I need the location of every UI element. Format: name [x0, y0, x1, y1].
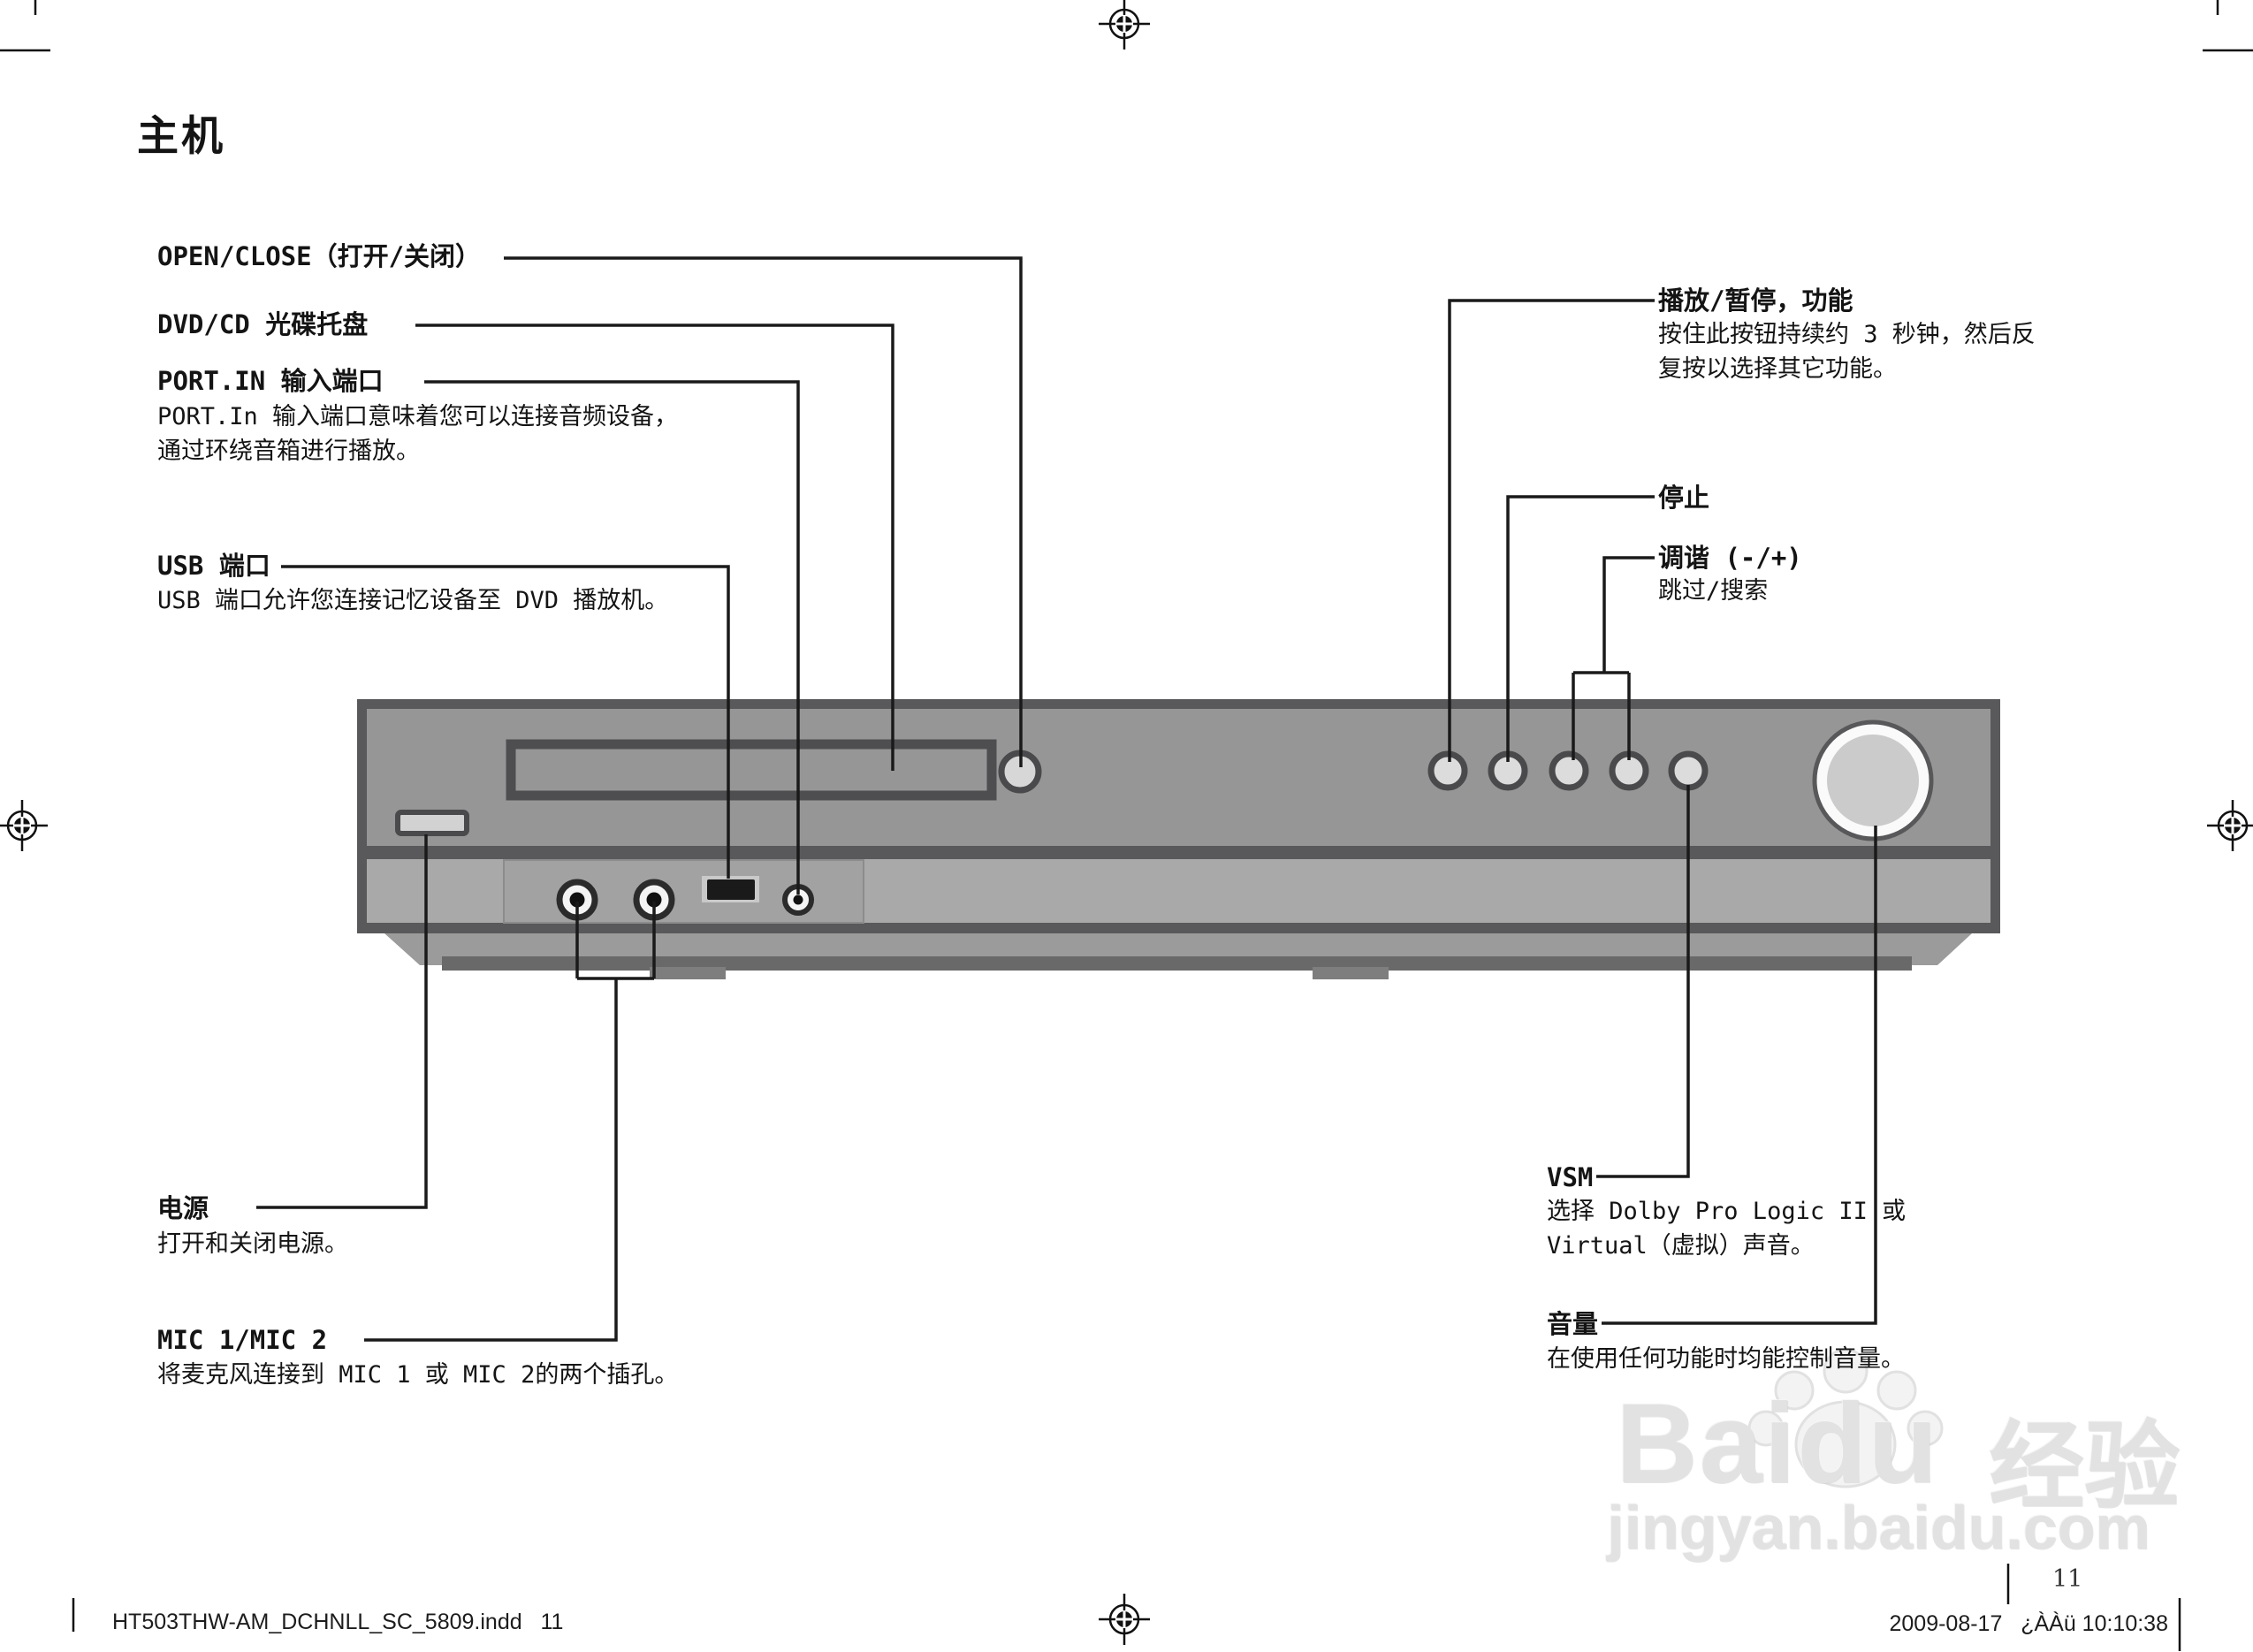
tuning-minus-button: [1552, 754, 1586, 788]
registration-mark-top: [1099, 0, 1150, 49]
callout-play-pause-desc1: 按住此按钮持续约 3 秒钟，然后反: [1658, 320, 2036, 350]
callout-mic-label: MIC 1/MIC 2: [157, 1324, 327, 1356]
watermark-brand: Baidu: [1616, 1379, 1939, 1509]
callout-play-pause-label: 播放/暂停，功能: [1658, 285, 1853, 316]
callout-stop-label: 停止: [1658, 482, 1709, 514]
callout-open-close-label: OPEN/CLOSE（打开/关闭）: [157, 240, 481, 272]
callout-volume-label: 音量: [1547, 1308, 1598, 1340]
callout-usb-desc: USB 端口允许您连接记忆设备至 DVD 播放机。: [157, 586, 668, 616]
watermark-domain: jingyan.baidu.com: [1607, 1492, 2150, 1563]
vsm-button: [1671, 754, 1705, 788]
callout-portin-label: PORT.IN 输入端口: [157, 365, 384, 397]
play-pause-button: [1431, 754, 1465, 788]
registration-mark-right: [2207, 800, 2253, 851]
callout-power-desc: 打开和关闭电源。: [157, 1229, 348, 1260]
callout-vsm-desc2: Virtual（虚拟）声音。: [1547, 1231, 1815, 1261]
footer-filename: HT503THW-AM_DCHNLL_SC_5809.indd 11: [112, 1609, 563, 1636]
page-title: 主机: [137, 111, 225, 164]
page-number: 11: [2052, 1564, 2082, 1595]
callout-portin-desc1: PORT.In 输入端口意味着您可以连接音频设备，: [157, 402, 678, 432]
registration-mark-left: [0, 800, 48, 851]
manual-page: 主机 OPEN/CLOSE（打开/关闭） DVD/CD 光碟托盘 PORT.IN…: [0, 0, 2253, 1652]
portin-jack-hole: [794, 895, 803, 905]
callout-tuning-label: 调谐 (-/+): [1658, 542, 1802, 574]
callout-play-pause-desc2: 复按以选择其它功能。: [1658, 354, 1897, 384]
callout-tuning-desc: 跳过/搜索: [1658, 576, 1768, 606]
footer-timestamp: 2009-08-17 ¿ÀÀü 10:10:38: [1889, 1610, 2168, 1638]
callout-vsm-label: VSM: [1547, 1161, 1593, 1193]
callout-portin-desc2: 通过环绕音箱进行播放。: [157, 437, 420, 467]
volume-knob: [1827, 735, 1919, 826]
usb-port: [707, 879, 755, 900]
callout-mic-desc: 将麦克风连接到 MIC 1 或 MIC 2的两个插孔。: [157, 1360, 678, 1390]
registration-mark-bottom: [1099, 1594, 1150, 1645]
callout-usb-label: USB 端口: [157, 550, 270, 582]
device-foot: [650, 967, 726, 979]
callout-power-label: 电源: [157, 1192, 209, 1224]
device-foot: [1313, 967, 1389, 979]
callout-volume-desc: 在使用任何功能时均能控制音量。: [1547, 1344, 1905, 1374]
power-button: [398, 812, 467, 834]
callout-tray-label: DVD/CD 光碟托盘: [157, 308, 368, 340]
disc-tray: [511, 744, 992, 796]
callout-vsm-desc1: 选择 Dolby Pro Logic II 或: [1547, 1197, 1906, 1227]
